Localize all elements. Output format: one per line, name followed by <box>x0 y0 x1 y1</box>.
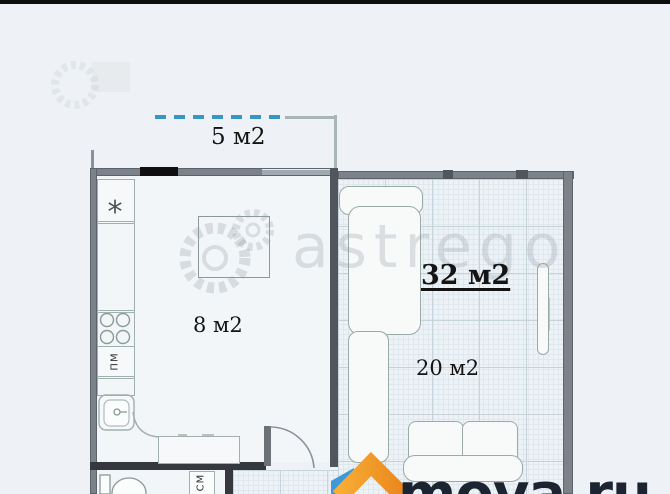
window-kitchen <box>140 167 178 176</box>
balcony-dashed-line <box>155 115 285 119</box>
wall-top-living-tick-2 <box>516 170 528 179</box>
balcony-solid-line <box>285 116 335 119</box>
dishwasher-label: ПМ <box>97 346 133 377</box>
total-area-label: 32 м2 <box>421 260 510 291</box>
kitchen-counter-bottom <box>158 436 240 464</box>
kitchen-counter-left <box>97 221 135 313</box>
balcony-side-line <box>334 115 337 170</box>
corner-sofa-chaise <box>348 331 389 463</box>
room-area-label: 20 м2 <box>416 356 479 380</box>
floorplan-image: * ПМ СМ astrego 5 м2 8 м2 32 м2 20 м2 <box>0 0 670 494</box>
kitchen-cabinet-small <box>97 376 135 396</box>
kitchen-area-label: 8 м2 <box>193 313 243 337</box>
wall-stub-top-left <box>91 150 94 168</box>
door-leaf-kitchen <box>264 426 271 466</box>
wall-top-living <box>338 171 574 179</box>
wall-top-living-tick-1 <box>443 170 453 179</box>
wall-bathroom-right <box>225 470 233 494</box>
window-kitchen-right <box>262 169 332 175</box>
hallway-floor <box>233 470 338 494</box>
brand-text: mova.ru <box>398 462 651 494</box>
kitchen-table <box>198 216 270 278</box>
top-black-bar <box>0 0 670 4</box>
wall-left <box>90 168 97 494</box>
stove <box>97 310 135 349</box>
washing-machine-label: СМ <box>189 471 213 494</box>
balcony-area-label: 5 м2 <box>211 124 265 150</box>
